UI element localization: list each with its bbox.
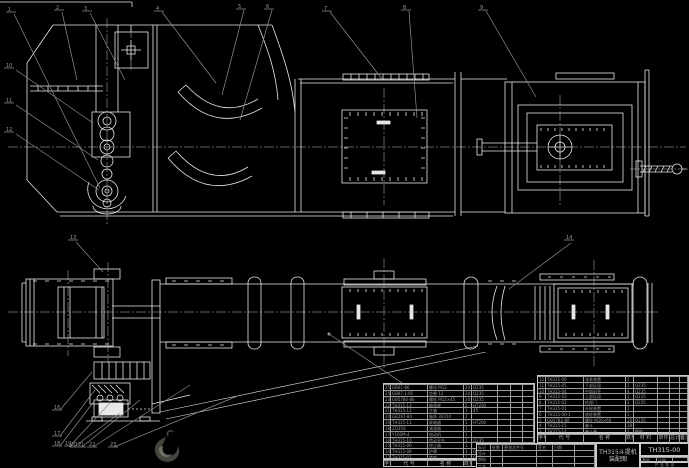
drawing-frame <box>0 2 132 7</box>
bom-cell: 序号 <box>538 434 546 443</box>
callout: 21 <box>78 442 84 448</box>
drawing-number-cell: TH315-00 <box>640 443 689 456</box>
callout-numbers: 1 2 3 4 5 6 7 8 9 10 11 12 13 14 16 17 1… <box>6 4 572 448</box>
bom-cell: 备注 <box>680 434 688 443</box>
center-lines <box>8 18 688 370</box>
callout: 10 <box>6 63 12 69</box>
callout: 2 <box>56 5 59 11</box>
callout: 11 <box>6 98 12 104</box>
sheet-count-cell: 共 张 第 张 <box>640 462 689 468</box>
callout: 16 <box>54 405 60 411</box>
bom-cell: 序号 <box>384 460 391 467</box>
product-name: TH315斗提机 <box>599 449 637 456</box>
bom-cell: 名 称 <box>584 434 626 443</box>
callout: 6 <box>266 4 269 10</box>
callout: 7 <box>324 6 327 12</box>
bom-cell: 总计 <box>670 434 680 443</box>
front-view <box>27 25 686 218</box>
bom-cell: 代 号 <box>391 460 428 467</box>
callout: 20 <box>71 442 77 448</box>
bom-cell: 数量 <box>626 434 634 443</box>
callout: 14 <box>566 235 572 241</box>
bom-cell: 数量 <box>464 460 472 467</box>
bom-cell: 工艺 <box>477 463 491 468</box>
callout: 8 <box>403 5 406 11</box>
callout: 23 <box>110 442 116 448</box>
bom-cell: 名 称 <box>428 460 464 467</box>
callout: 9 <box>480 5 483 11</box>
callout: 13 <box>70 235 76 241</box>
bom-cell: 代 号 <box>546 434 584 443</box>
cad-drawing-canvas: 1 2 3 4 5 6 7 8 9 10 11 12 13 14 16 17 1… <box>0 0 689 468</box>
sheet-name: 装配图 <box>609 456 627 463</box>
title-block-signature-grid: 标记处数更改文件号签名日期设计审核工艺 <box>476 443 596 468</box>
watermark-logo <box>155 431 179 462</box>
bom-cell <box>553 463 575 468</box>
callout: 4 <box>156 6 159 12</box>
bom-cell <box>575 463 595 468</box>
callout: 22 <box>89 442 95 448</box>
callout: 17 <box>54 431 60 437</box>
bom-cell <box>503 463 537 468</box>
bom-table-right-header: 序号代 号名 称数量材 料单件总计备注 <box>537 433 689 443</box>
callout: 12 <box>6 127 12 133</box>
callout: 5 <box>238 4 241 10</box>
callout: 1 <box>8 7 11 13</box>
callout: 18 <box>54 441 60 447</box>
bom-cell: 材 料 <box>634 434 658 443</box>
callout: 3 <box>84 6 87 12</box>
bom-cell: 单件 <box>658 434 670 443</box>
bom-cell <box>537 463 553 468</box>
bom-table-right: 12TH315-06张紧装置111TH315-05下部区段1Q23510TH31… <box>537 375 689 433</box>
title-block-name-cell: TH315斗提机 装配图 <box>596 443 640 468</box>
bom-cell <box>491 463 503 468</box>
